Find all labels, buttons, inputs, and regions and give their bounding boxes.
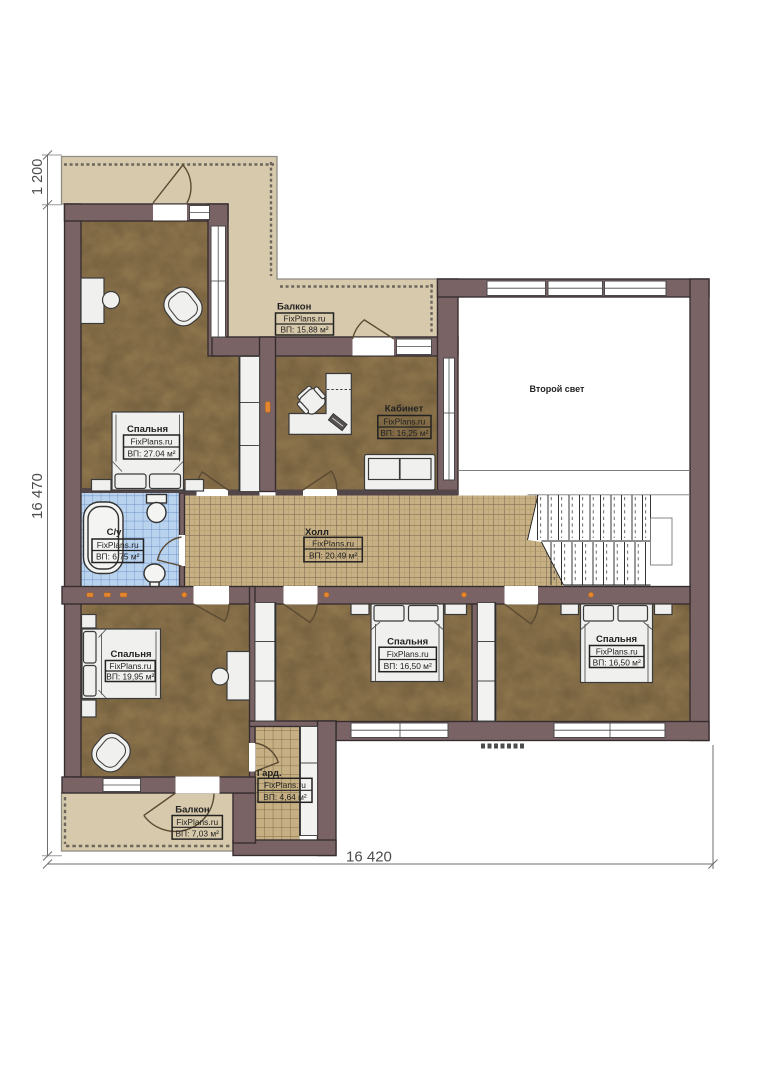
svg-text:ВП: 7,03 м²: ВП: 7,03 м² — [175, 829, 219, 839]
svg-text:FixPlans.ru: FixPlans.ru — [264, 780, 306, 790]
svg-text:ВП: 16,50 м²: ВП: 16,50 м² — [593, 657, 641, 667]
svg-text:ВП: 6,75 м²: ВП: 6,75 м² — [96, 552, 140, 562]
svg-text:FixPlans.ru: FixPlans.ru — [284, 314, 326, 324]
svg-text:ВП: 27.04 м²: ВП: 27.04 м² — [127, 449, 175, 459]
svg-text:Холл: Холл — [305, 527, 329, 538]
svg-text:Спальня: Спальня — [127, 424, 168, 435]
svg-text:FixPlans.ru: FixPlans.ru — [176, 817, 218, 827]
svg-text:FixPlans.ru: FixPlans.ru — [312, 539, 354, 549]
svg-text:FixPlans.ru: FixPlans.ru — [97, 540, 139, 550]
svg-text:Гард.: Гард. — [257, 768, 282, 779]
svg-text:FixPlans.ru: FixPlans.ru — [387, 649, 429, 659]
svg-text:Балкон: Балкон — [277, 302, 312, 313]
svg-text:16 470: 16 470 — [29, 473, 46, 519]
svg-text:Спальня: Спальня — [110, 649, 151, 660]
svg-text:ВП: 15,88 м²: ВП: 15,88 м² — [280, 325, 328, 335]
svg-text:FixPlans.ru: FixPlans.ru — [596, 646, 638, 656]
svg-text:ВП: 20.49 м²: ВП: 20.49 м² — [309, 551, 357, 561]
svg-text:С/у: С/у — [107, 527, 123, 538]
svg-text:FixPlans.ru: FixPlans.ru — [131, 437, 173, 447]
svg-text:16 420: 16 420 — [346, 849, 392, 866]
svg-text:ВП: 16,25 м²: ВП: 16,25 м² — [380, 428, 428, 438]
svg-text:Второй свет: Второй свет — [530, 384, 586, 394]
svg-text:Спальня: Спальня — [387, 637, 428, 648]
svg-text:Кабинет: Кабинет — [385, 404, 424, 415]
svg-text:FixPlans.ru: FixPlans.ru — [109, 661, 151, 671]
svg-text:ВП: 4,64 м²: ВП: 4,64 м² — [263, 792, 307, 802]
svg-text:Спальня: Спальня — [596, 634, 637, 645]
svg-text:ВП: 16,50 м²: ВП: 16,50 м² — [384, 661, 432, 671]
svg-text:Балкон: Балкон — [175, 805, 210, 816]
svg-text:1 200: 1 200 — [30, 159, 46, 195]
svg-text:FixPlans.ru: FixPlans.ru — [383, 417, 425, 427]
svg-text:ВП: 19,95 м²: ВП: 19,95 м² — [106, 671, 154, 681]
